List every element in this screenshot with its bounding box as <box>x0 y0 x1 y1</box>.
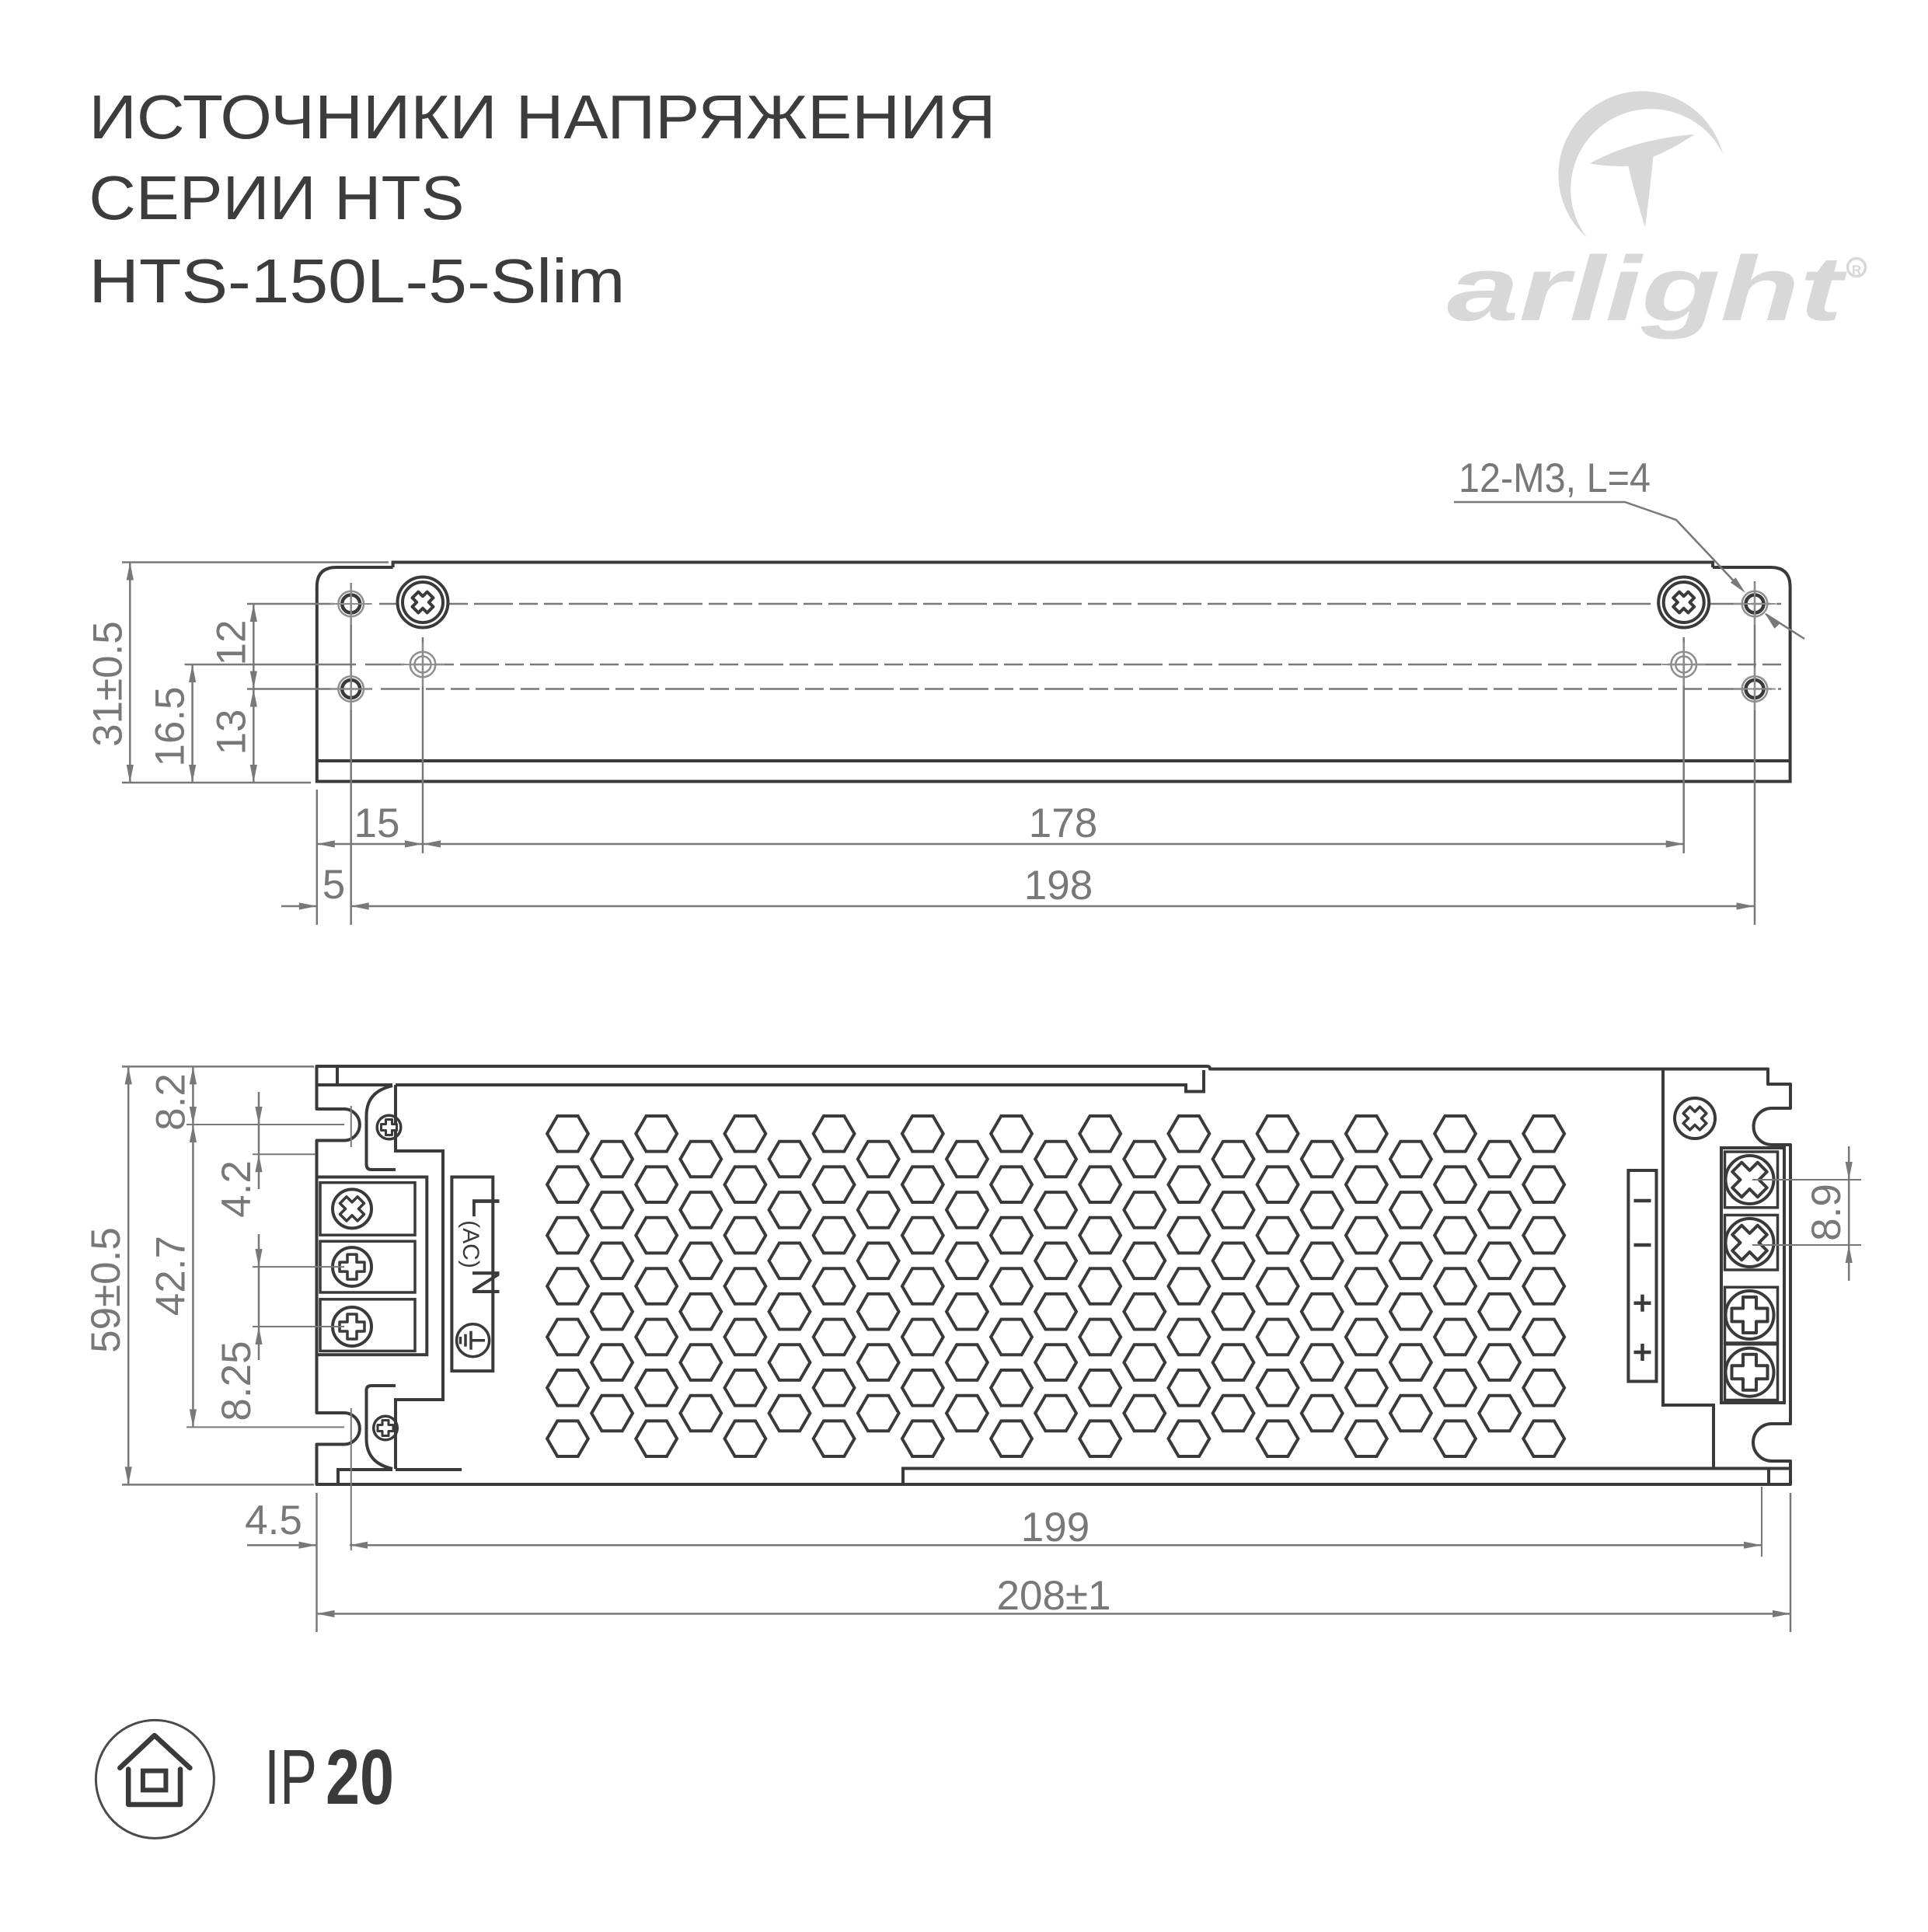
svg-text:(AC): (AC) <box>458 1220 483 1268</box>
svg-text:arlight: arlight <box>1447 238 1848 340</box>
svg-text:8.25: 8.25 <box>214 1341 260 1421</box>
svg-text:198: 198 <box>1024 863 1093 908</box>
svg-text:15: 15 <box>354 800 400 846</box>
svg-text:16.5: 16.5 <box>148 686 193 766</box>
svg-text:ИСТОЧНИКИ НАПРЯЖЕНИЯ: ИСТОЧНИКИ НАПРЯЖЕНИЯ <box>89 82 995 152</box>
svg-text:4.2: 4.2 <box>214 1160 260 1218</box>
svg-text:R: R <box>1852 263 1861 277</box>
svg-text:L: L <box>464 1196 507 1218</box>
svg-text:8.9: 8.9 <box>1804 1184 1850 1241</box>
svg-text:12-M3, L=4: 12-M3, L=4 <box>1459 455 1651 501</box>
svg-text:12: 12 <box>208 620 254 666</box>
svg-text:4.5: 4.5 <box>245 1498 302 1543</box>
svg-text:20: 20 <box>326 1734 394 1821</box>
svg-text:HTS-150L-5-Slim: HTS-150L-5-Slim <box>89 246 625 316</box>
svg-text:СЕРИИ HTS: СЕРИИ HTS <box>89 163 464 232</box>
svg-text:59±0.5: 59±0.5 <box>83 1227 129 1353</box>
svg-text:13: 13 <box>208 710 254 755</box>
svg-text:42.7: 42.7 <box>148 1236 193 1316</box>
svg-text:178: 178 <box>1029 800 1097 846</box>
svg-text:IP: IP <box>264 1734 317 1821</box>
svg-text:208±1: 208±1 <box>997 1573 1111 1619</box>
svg-text:8.2: 8.2 <box>148 1073 193 1131</box>
svg-text:199: 199 <box>1021 1505 1090 1550</box>
svg-text:31±0.5: 31±0.5 <box>85 621 131 747</box>
svg-text:N: N <box>464 1268 507 1296</box>
svg-text:5: 5 <box>322 862 345 908</box>
